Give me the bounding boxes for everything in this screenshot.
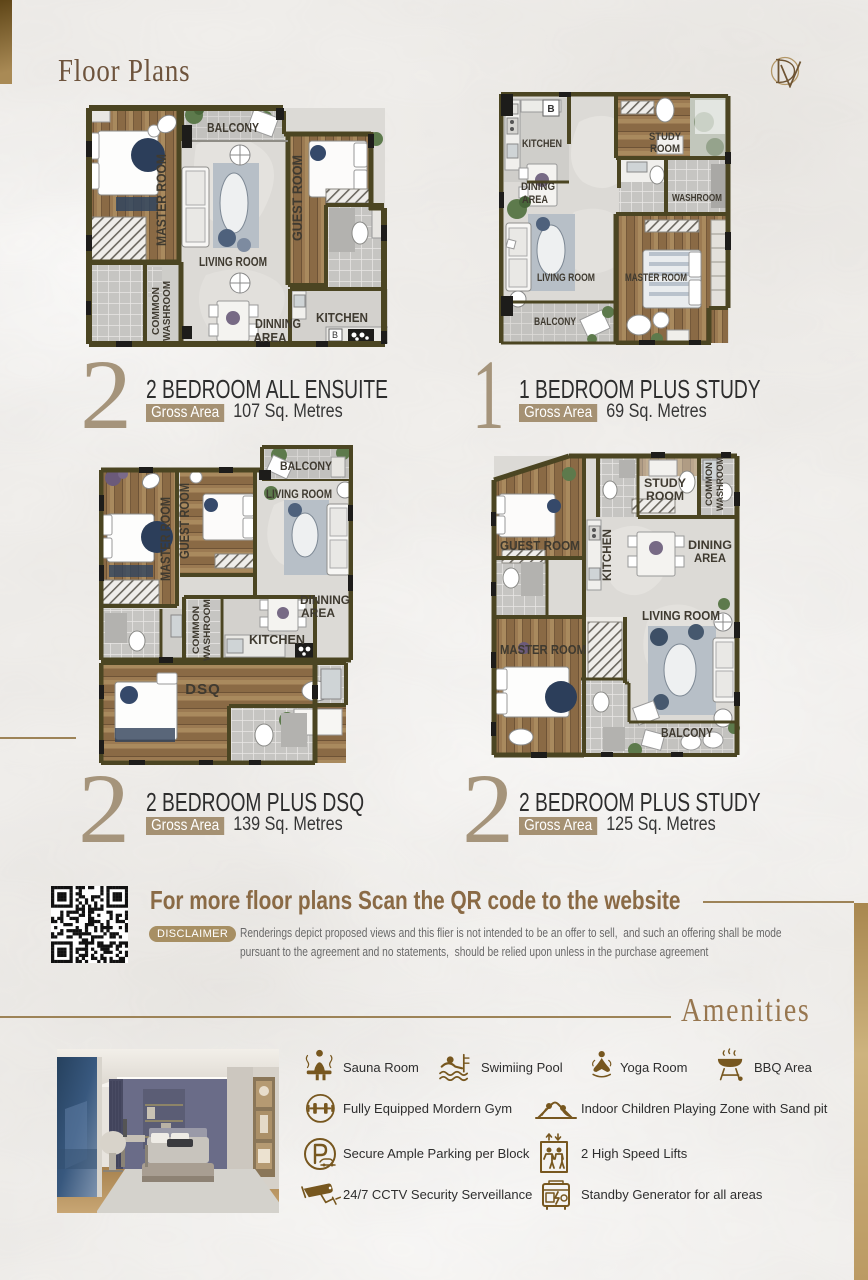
svg-text:LIVING ROOM: LIVING ROOM xyxy=(266,489,332,501)
svg-text:BALCONY: BALCONY xyxy=(534,316,577,328)
svg-text:B: B xyxy=(547,104,554,115)
svg-text:Fully Equipped Mordern Gym: Fully Equipped Mordern Gym xyxy=(343,1101,512,1116)
svg-text:WASHROOM: WASHROOM xyxy=(162,281,173,341)
svg-text:2 High Speed Lifts: 2 High Speed Lifts xyxy=(581,1146,688,1161)
svg-text:COMMON: COMMON xyxy=(151,287,162,335)
svg-text:AREA: AREA xyxy=(301,606,335,620)
svg-text:LIVING ROOM: LIVING ROOM xyxy=(537,272,595,284)
svg-text:Yoga Room: Yoga Room xyxy=(620,1060,687,1075)
svg-text:AREA: AREA xyxy=(694,551,726,565)
svg-text:Secure Ample Parking per Block: Secure Ample Parking per Block xyxy=(343,1146,530,1161)
svg-text:KITCHEN: KITCHEN xyxy=(522,138,562,150)
svg-text:KITCHEN: KITCHEN xyxy=(600,529,614,581)
svg-text:LIVING ROOM: LIVING ROOM xyxy=(642,608,720,623)
svg-text:DINING: DINING xyxy=(688,538,732,552)
svg-text:DSQ: DSQ xyxy=(185,681,221,698)
svg-text:24/7 CCTV Security Serveillanc: 24/7 CCTV Security Serveillance xyxy=(343,1187,532,1202)
svg-text:MASTER ROOM: MASTER ROOM xyxy=(153,154,169,246)
svg-text:MASTER ROOM: MASTER ROOM xyxy=(158,497,173,581)
svg-text:BALCONY: BALCONY xyxy=(280,459,332,473)
svg-text:WASHROOM: WASHROOM xyxy=(672,193,722,204)
svg-text:DINNING: DINNING xyxy=(255,317,301,331)
svg-text:DINNING: DINNING xyxy=(300,593,350,607)
svg-text:COMMON: COMMON xyxy=(191,606,202,654)
svg-text:WASHROOM: WASHROOM xyxy=(202,599,213,661)
svg-text:BBQ Area: BBQ Area xyxy=(754,1060,813,1075)
svg-text:MASTER ROOM: MASTER ROOM xyxy=(500,643,586,657)
svg-text:BALCONY: BALCONY xyxy=(661,726,714,740)
svg-text:STUDY: STUDY xyxy=(644,478,686,490)
svg-text:LIVING ROOM: LIVING ROOM xyxy=(199,255,267,269)
svg-text:Sauna Room: Sauna Room xyxy=(343,1060,419,1075)
svg-text:STUDY: STUDY xyxy=(649,131,682,143)
svg-text:DINING: DINING xyxy=(521,181,555,193)
svg-text:MASTER ROOM: MASTER ROOM xyxy=(625,272,687,284)
svg-text:COMMON: COMMON xyxy=(704,462,714,506)
svg-text:GUEST ROOM: GUEST ROOM xyxy=(500,539,580,553)
svg-text:GUEST ROOM: GUEST ROOM xyxy=(177,483,192,559)
svg-text:KITCHEN: KITCHEN xyxy=(249,632,305,647)
svg-text:WASHROOM: WASHROOM xyxy=(715,457,725,511)
svg-text:ROOM: ROOM xyxy=(646,491,684,503)
svg-text:AREA: AREA xyxy=(254,331,287,345)
svg-text:B: B xyxy=(332,330,338,340)
svg-text:Indoor Children Playing Zone w: Indoor Children Playing Zone with Sand p… xyxy=(581,1101,828,1116)
svg-text:KITCHEN: KITCHEN xyxy=(316,310,368,325)
svg-text:GUEST ROOM: GUEST ROOM xyxy=(289,155,305,241)
svg-text:Swimiing Pool: Swimiing Pool xyxy=(481,1060,563,1075)
svg-text:BALCONY: BALCONY xyxy=(207,121,260,135)
svg-text:Standby Generator for all area: Standby Generator for all areas xyxy=(581,1187,763,1202)
svg-text:AREA: AREA xyxy=(522,194,548,206)
svg-text:ROOM: ROOM xyxy=(650,143,680,155)
